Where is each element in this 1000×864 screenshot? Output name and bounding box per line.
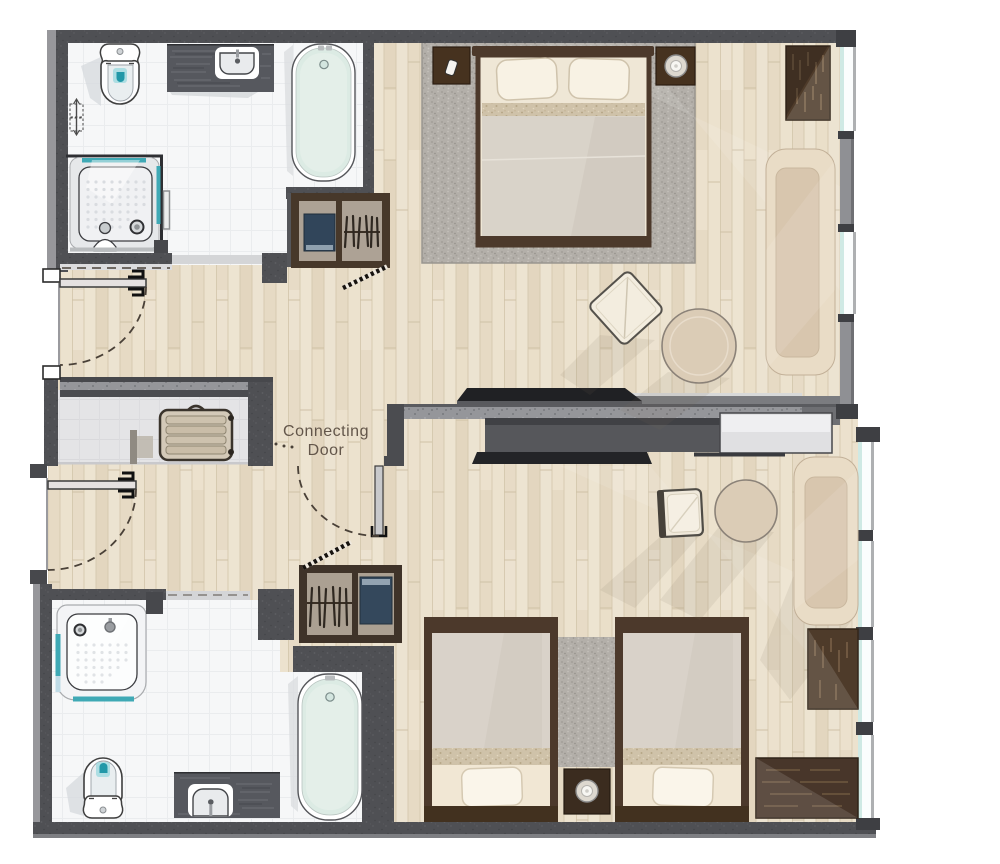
svg-text:Door: Door: [308, 442, 345, 459]
svg-text:Connecting: Connecting: [283, 423, 369, 440]
